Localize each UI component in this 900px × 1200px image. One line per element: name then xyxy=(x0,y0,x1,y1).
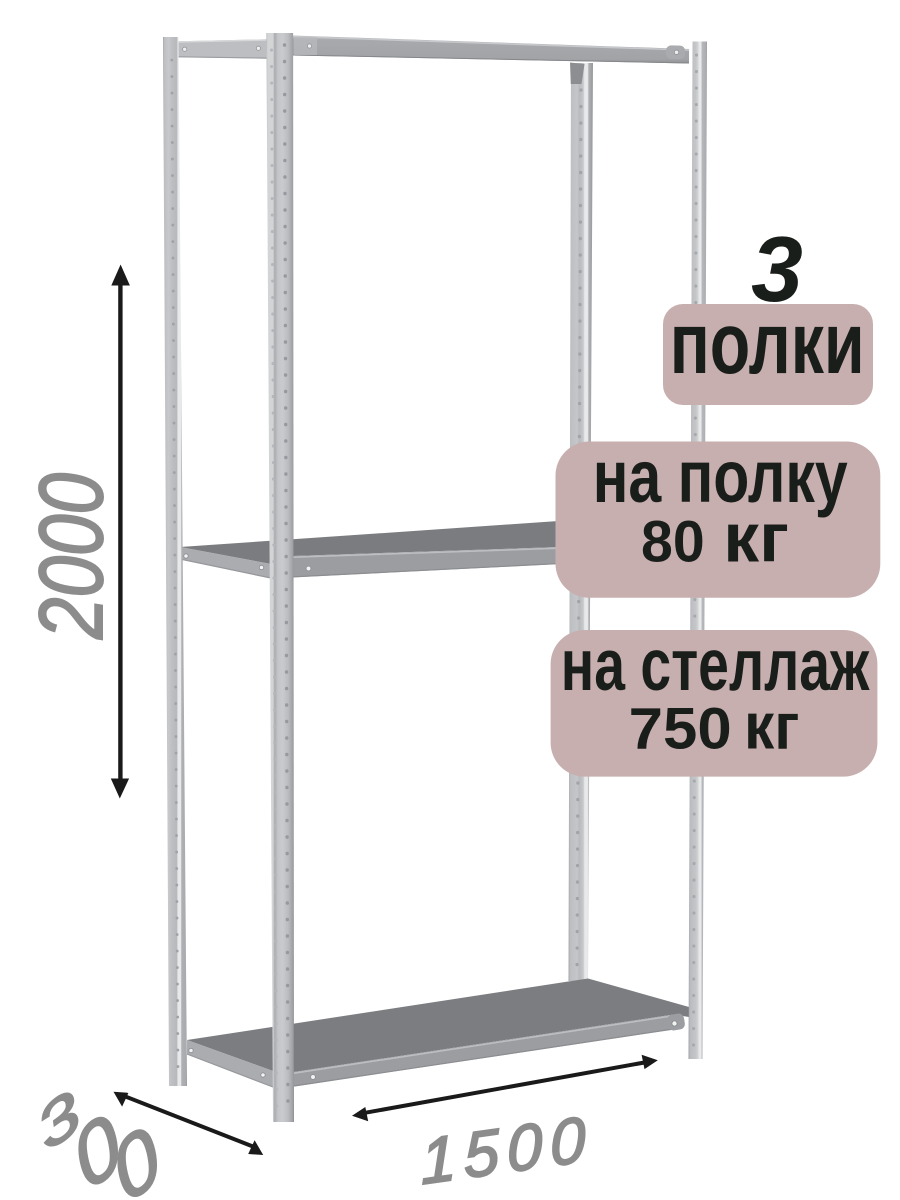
svg-text:1500: 1500 xyxy=(419,1102,594,1198)
svg-text:750: 750 xyxy=(629,697,732,762)
svg-text:кг: кг xyxy=(723,499,789,577)
svg-text:80: 80 xyxy=(641,510,705,575)
svg-text:кг: кг xyxy=(744,689,799,763)
svg-text:полки: полки xyxy=(670,295,865,392)
svg-text:на полку: на полку xyxy=(593,435,848,518)
svg-text:2000: 2000 xyxy=(22,473,122,640)
svg-text:на стеллаж: на стеллаж xyxy=(561,625,870,706)
